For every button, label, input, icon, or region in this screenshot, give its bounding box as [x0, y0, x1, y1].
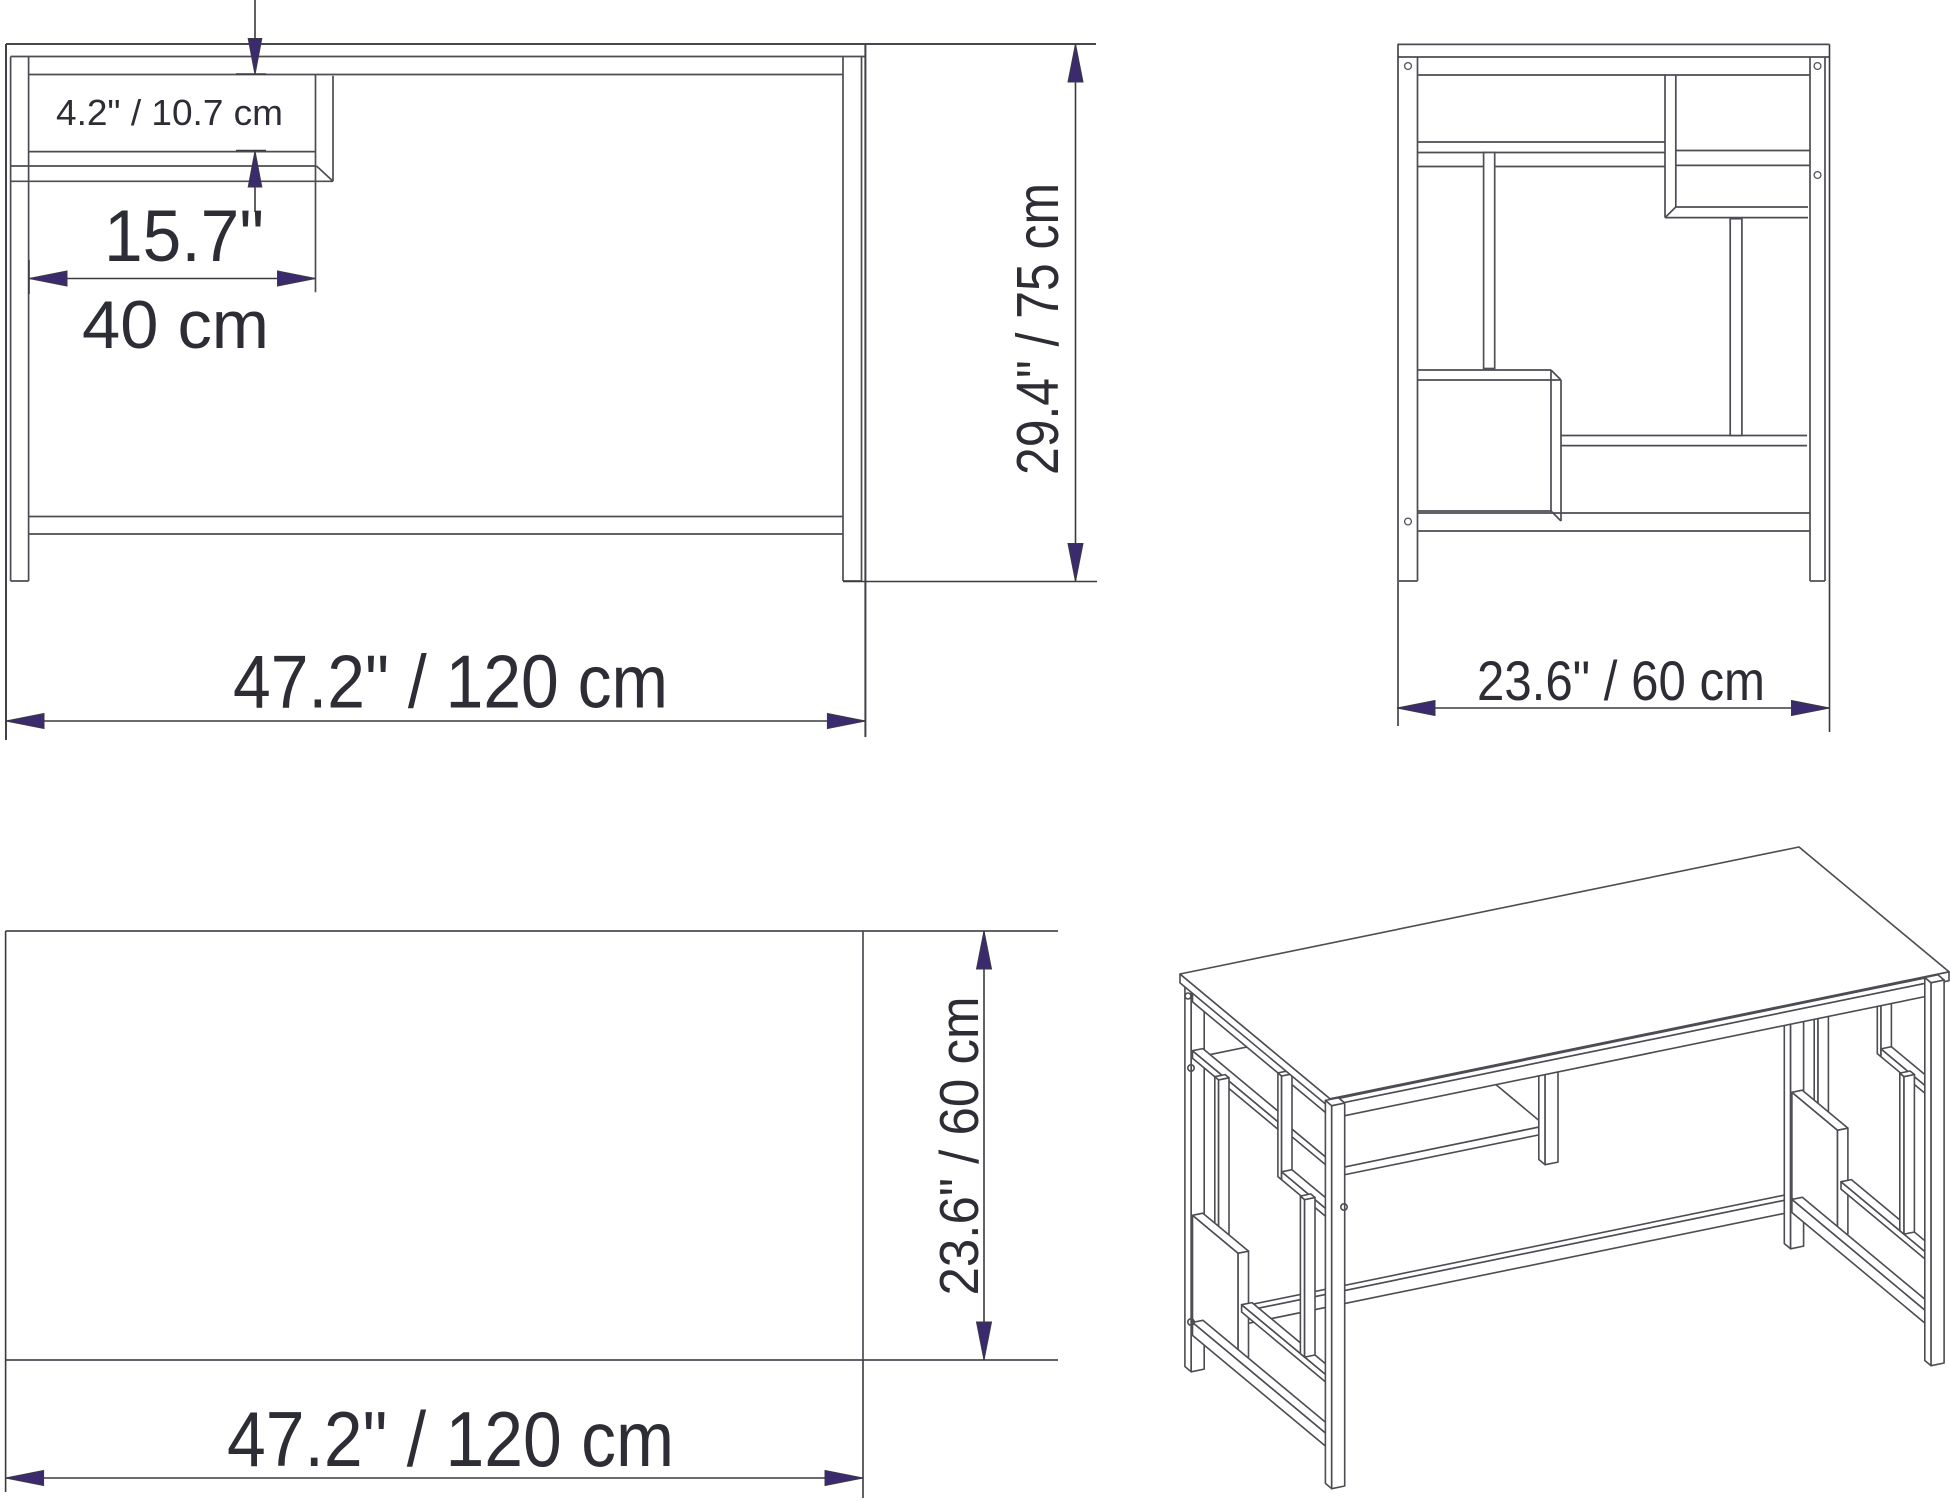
svg-text:23.6" / 60 cm: 23.6" / 60 cm	[1477, 649, 1765, 712]
svg-text:23.6" / 60 cm: 23.6" / 60 cm	[928, 997, 990, 1296]
svg-text:47.2" / 120 cm: 47.2" / 120 cm	[227, 1395, 674, 1483]
svg-text:15.7": 15.7"	[104, 196, 264, 277]
svg-text:40 cm: 40 cm	[82, 287, 269, 363]
svg-text:4.2" / 10.7 cm: 4.2" / 10.7 cm	[56, 92, 283, 133]
svg-text:47.2" / 120 cm: 47.2" / 120 cm	[233, 640, 668, 724]
svg-text:29.4" / 75 cm: 29.4" / 75 cm	[1005, 183, 1071, 475]
